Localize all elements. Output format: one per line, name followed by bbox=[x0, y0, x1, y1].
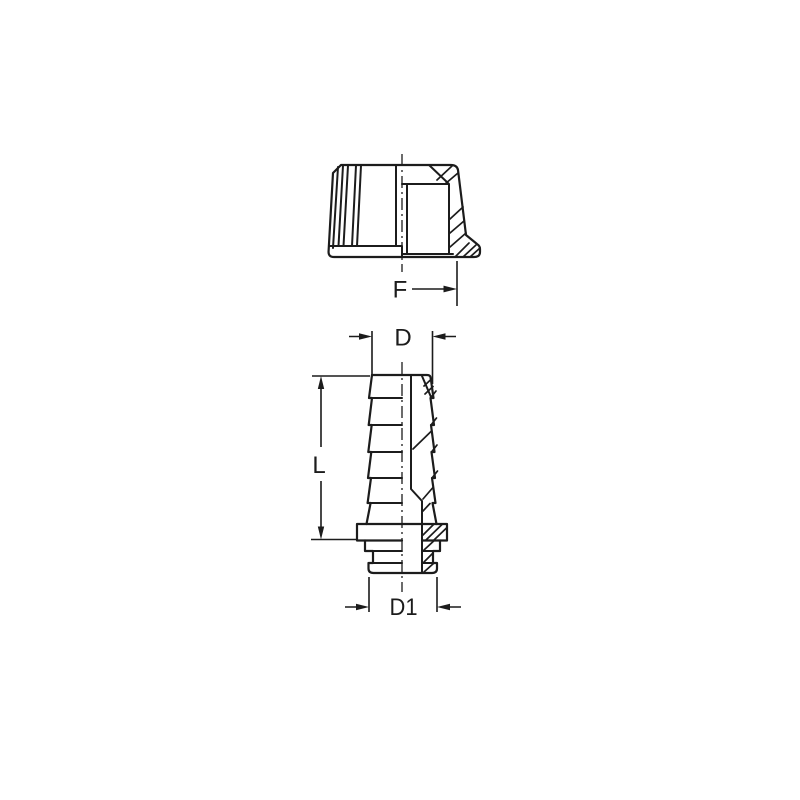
d-label: D bbox=[394, 325, 411, 352]
cap-knurl-ribs bbox=[333, 166, 361, 249]
technical-drawing-page: F D bbox=[0, 0, 800, 800]
d-arrowhead-left bbox=[359, 333, 372, 339]
f-label: F bbox=[393, 277, 408, 304]
l-arrowhead-bottom bbox=[318, 527, 324, 540]
barb-view bbox=[357, 362, 447, 592]
d1-dimension: D1 bbox=[345, 577, 461, 621]
f-arrowhead bbox=[444, 286, 458, 293]
cap-base-band bbox=[329, 246, 402, 257]
l-label: L bbox=[312, 452, 325, 479]
barb-ridge-lines bbox=[368, 398, 402, 503]
flange-hatch bbox=[423, 525, 447, 541]
cap-bore-lines bbox=[402, 165, 453, 254]
cap-view bbox=[329, 154, 480, 272]
l-arrowhead-top bbox=[318, 376, 324, 389]
d1-arrowhead-right bbox=[437, 604, 450, 610]
d-arrowhead-right bbox=[433, 333, 446, 339]
technical-drawing-canvas: F D bbox=[0, 0, 800, 800]
d1-label: D1 bbox=[390, 594, 418, 621]
l-dimension: L bbox=[311, 376, 370, 540]
d1-arrowhead-left bbox=[356, 604, 369, 610]
barb-bore-wall bbox=[411, 376, 422, 573]
